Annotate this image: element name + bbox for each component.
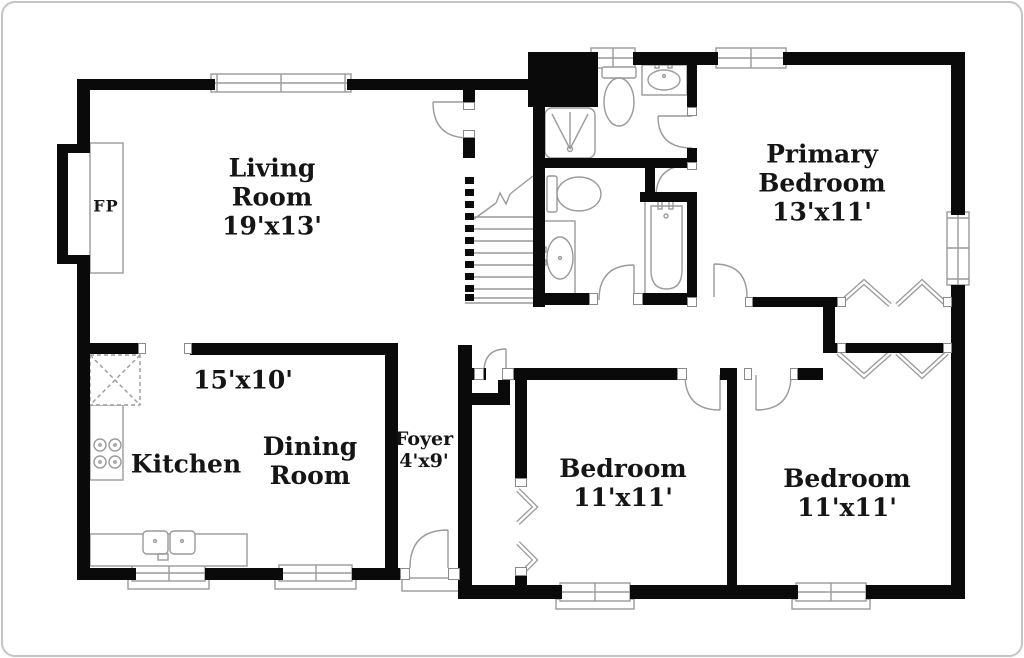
door-jamb: [687, 107, 697, 116]
door-jamb: [589, 293, 598, 305]
bathtub-icon: [645, 200, 688, 295]
dining-room-label: Dining Room: [263, 432, 358, 490]
floorplan-canvas: Living Room 19'x13' Primary Bedroom 13'x…: [0, 0, 1024, 658]
door-jamb: [448, 568, 460, 580]
wall-segment: [533, 158, 697, 168]
fireplace-label: FP: [93, 198, 118, 217]
wall-segment: [951, 285, 965, 599]
wall-segment: [645, 168, 655, 194]
wall-segment: [533, 293, 597, 305]
wall-segment: [533, 107, 545, 307]
wall-segment: [458, 393, 510, 405]
wall-segment: [77, 79, 90, 144]
room-name: Living: [222, 154, 322, 183]
wall-segment: [205, 568, 283, 580]
door-jamb: [515, 567, 527, 576]
room-name: Primary: [758, 140, 886, 169]
wall-segment: [77, 255, 90, 580]
toilet-icon: [547, 176, 601, 212]
door-jamb: [184, 343, 192, 354]
door-jamb: [502, 368, 514, 380]
wall-segment: [783, 52, 965, 65]
fireplace-abbr: FP: [93, 198, 118, 217]
door-jamb: [744, 368, 752, 380]
shower-icon: [545, 108, 595, 158]
wall-segment: [630, 585, 798, 599]
stairs-icon: [465, 176, 533, 303]
room-name: Room: [222, 183, 322, 212]
room-dims: 4'x9': [395, 451, 453, 473]
wall-segment: [458, 345, 472, 599]
bedroom-left-label: Bedroom 11'x11': [559, 454, 687, 512]
sink-icon: [540, 221, 575, 296]
foyer-label: Foyer 4'x9': [395, 429, 453, 473]
toilet-icon: [602, 67, 636, 126]
bedroom-right-label: Bedroom 11'x11': [783, 464, 911, 522]
fixtures-layer: [0, 0, 1024, 658]
room-name: Foyer: [395, 429, 453, 451]
wall-segment: [458, 585, 562, 599]
sink-icon: [642, 62, 687, 95]
room-dims: 19'x13': [222, 212, 322, 241]
door-jamb: [745, 297, 753, 307]
wall-segment: [866, 585, 965, 599]
room-name: Bedroom: [559, 454, 687, 483]
door-jamb: [837, 343, 846, 353]
room-dims: 11'x11': [783, 493, 911, 522]
door-jamb: [463, 102, 475, 110]
room-name: Bedroom: [758, 169, 886, 198]
room-name: Bedroom: [783, 464, 911, 493]
wall-segment: [77, 79, 215, 90]
wall-segment: [515, 368, 527, 478]
wall-segment: [190, 343, 392, 355]
room-dims: 11'x11': [559, 483, 687, 512]
room-dims: 15'x10': [193, 366, 293, 395]
door-jamb: [943, 343, 952, 353]
refrigerator-icon: [90, 355, 140, 405]
wall-segment: [347, 79, 535, 90]
room-name: Kitchen: [131, 450, 241, 479]
living-room-label: Living Room 19'x13': [222, 154, 322, 241]
door-jamb: [790, 368, 798, 380]
room-dims: 13'x11': [758, 198, 886, 227]
door-jamb: [515, 478, 527, 487]
wall-segment: [951, 52, 965, 215]
wall-segment: [727, 368, 737, 585]
door-jamb: [463, 130, 475, 138]
wall-segment: [633, 52, 718, 65]
wall-segment: [687, 197, 697, 297]
primary-bedroom-label: Primary Bedroom 13'x11': [758, 140, 886, 227]
wall-segment: [687, 148, 697, 162]
wall-segment: [752, 297, 838, 307]
wall-segment: [57, 144, 68, 264]
dining-room-dims-label: 15'x10': [193, 366, 293, 395]
wall-segment: [514, 368, 677, 380]
room-name: Room: [263, 461, 358, 490]
door-jamb: [837, 297, 846, 307]
chimney: [528, 52, 598, 107]
door-jamb: [687, 297, 697, 307]
door-jamb: [677, 368, 687, 380]
door-jamb: [138, 343, 146, 354]
door-jamb: [687, 162, 697, 170]
door-jamb: [474, 368, 484, 380]
door-jamb: [943, 297, 952, 307]
wall-segment: [687, 65, 697, 107]
wall-segment: [463, 90, 475, 102]
door-jamb: [633, 293, 643, 305]
wall-segment: [463, 138, 475, 158]
wall-segment: [90, 343, 140, 354]
door-jamb: [400, 568, 410, 580]
room-name: Dining: [263, 432, 358, 461]
kitchen-label: Kitchen: [131, 450, 241, 479]
